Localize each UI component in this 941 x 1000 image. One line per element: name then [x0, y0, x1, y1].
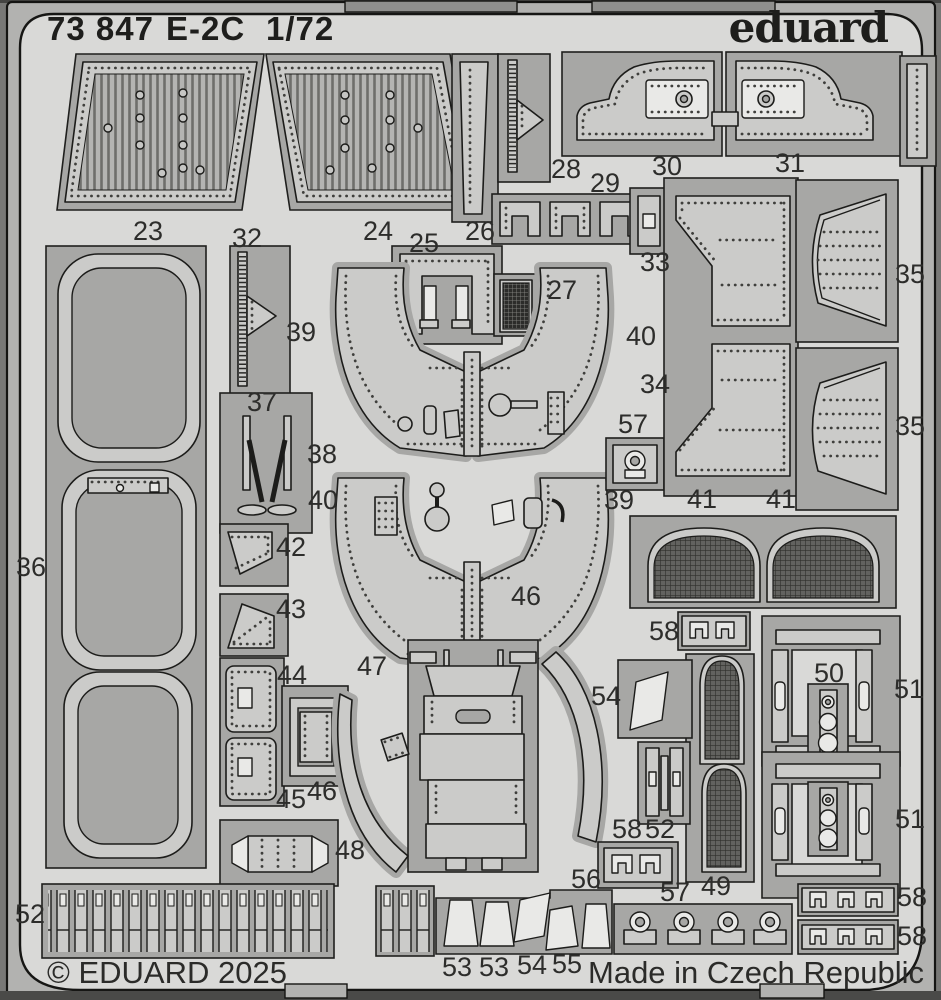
part-number-label: 33 — [640, 247, 670, 277]
catalog-number: 73 847 — [47, 10, 154, 47]
part-54-plate — [618, 660, 692, 738]
part-51-frame-lower — [762, 752, 900, 898]
part-number-label: 46 — [511, 581, 541, 611]
part-58-clips-c — [798, 884, 898, 916]
border-tab-notch — [345, 1, 517, 12]
part-number-label: 58 — [897, 882, 927, 912]
part-number-label: 36 — [16, 552, 46, 582]
part-number-label: 40 — [626, 321, 656, 351]
part-number-label: 52 — [15, 899, 45, 929]
part-48-tank — [220, 820, 338, 886]
part-32-trim-strip — [230, 246, 290, 394]
part-number-label: 25 — [409, 228, 439, 258]
part-23-grille — [57, 54, 264, 210]
part-29-bracket-strip — [492, 194, 650, 244]
part-number-label: 47 — [357, 651, 387, 681]
part-52-strips-mid — [638, 742, 690, 824]
part-number-label: 37 — [247, 387, 277, 417]
part-number-label: 54 — [517, 950, 547, 980]
part-number-label: 26 — [465, 216, 495, 246]
part-number-label: 34 — [640, 369, 670, 399]
part-57-clamp-row — [614, 904, 792, 954]
part-number-label: 43 — [276, 594, 306, 624]
part-number-label: 50 — [814, 658, 844, 688]
part-number-label: 35 — [895, 259, 925, 289]
part-35-lip-lower — [796, 348, 898, 510]
part-number-label: 41 — [687, 484, 717, 514]
pe-fret-photo: 73 847 E-2C 1/72 eduard © EDUARD 2025 Ma… — [0, 0, 941, 1000]
part-number-label: 24 — [363, 216, 393, 246]
part-number-label: 38 — [307, 439, 337, 469]
part-26-strip — [452, 54, 498, 222]
part-number-label: 57 — [618, 409, 648, 439]
copyright-text: © EDUARD 2025 — [47, 955, 287, 990]
part-28-trim-strip — [498, 54, 550, 182]
part-number-label: 48 — [335, 835, 365, 865]
model-name: E-2C — [166, 10, 245, 47]
part-number-label: 53 — [442, 952, 472, 982]
part-number-label: 45 — [276, 784, 306, 814]
brand-logo: eduard — [729, 3, 889, 52]
part-number-label: 52 — [645, 814, 675, 844]
part-number-label: 40 — [308, 485, 338, 515]
part-mesh-ovals — [630, 516, 896, 608]
part-number-label: 44 — [277, 660, 307, 690]
part-number-label: 58 — [897, 921, 927, 951]
part-number-label: 31 — [775, 148, 805, 178]
part-number-label: 32 — [232, 223, 262, 253]
part-number-label: 28 — [551, 154, 581, 184]
part-number-label: 49 — [701, 871, 731, 901]
part-52-belt-comb — [42, 884, 434, 958]
part-49-mesh-strips — [686, 654, 754, 882]
part-31-panel — [712, 52, 902, 156]
part-number-label: 39 — [286, 317, 316, 347]
part-number-label: 23 — [133, 216, 163, 246]
part-number-label: 54 — [591, 681, 621, 711]
part-33-34-panels — [664, 178, 798, 496]
part-51-frame-upper — [762, 616, 900, 766]
part-45-plate — [226, 738, 276, 800]
pe-fret-sheet: 73 847 E-2C 1/72 eduard © EDUARD 2025 Ma… — [0, 0, 941, 1000]
part-number-label: 55 — [552, 949, 582, 979]
part-edge-strip — [900, 56, 936, 166]
border-tab-notch — [285, 984, 347, 998]
part-58-clips-d — [798, 920, 898, 954]
part-number-label: 29 — [590, 168, 620, 198]
part-number-label: 41 — [766, 484, 796, 514]
part-number-label: 58 — [612, 814, 642, 844]
part-number-label: 58 — [649, 616, 679, 646]
part-30-panel — [562, 52, 722, 156]
part-number-label: 30 — [652, 151, 682, 181]
part-number-label: 51 — [895, 804, 925, 834]
part-53-55-pedals — [436, 890, 612, 954]
part-number-label: 46 — [307, 776, 337, 806]
part-number-label: 51 — [894, 674, 924, 704]
part-number-label: 35 — [895, 411, 925, 441]
part-number-label: 53 — [479, 952, 509, 982]
part-35-lip-upper — [796, 180, 898, 342]
part-number-label: 57 — [660, 877, 690, 907]
part-58-clips-a — [678, 612, 750, 650]
part-number-label: 56 — [571, 864, 601, 894]
part-36-window-frames — [46, 246, 206, 868]
part-24-grille — [266, 54, 476, 210]
part-57-clamp-upper — [606, 438, 664, 490]
scale: 1/72 — [266, 10, 334, 47]
part-number-label: 27 — [547, 275, 577, 305]
part-number-label: 42 — [276, 532, 306, 562]
origin-text: Made in Czech Republic — [588, 955, 924, 990]
part-number-label: 39 — [604, 485, 634, 515]
